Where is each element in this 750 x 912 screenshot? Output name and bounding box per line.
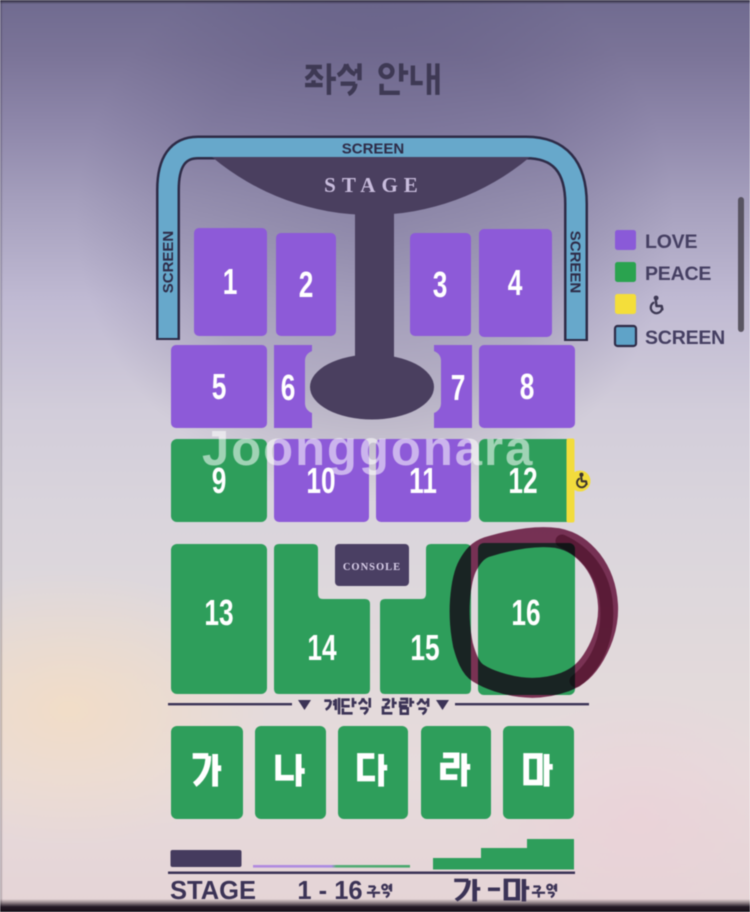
svg-text:14: 14 (307, 627, 337, 668)
svg-text:STAGE: STAGE (324, 173, 424, 197)
svg-text:LOVE: LOVE (645, 231, 697, 253)
svg-text:SCREEN: SCREEN (342, 141, 405, 158)
svg-text:SCREEN: SCREEN (567, 231, 584, 294)
svg-text:PEACE: PEACE (645, 263, 711, 285)
svg-text:SCREEN: SCREEN (160, 231, 177, 294)
svg-text:6: 6 (281, 367, 296, 408)
svg-text:1 - 16: 1 - 16 (297, 877, 362, 905)
svg-text:7: 7 (451, 367, 466, 408)
svg-text:SCREEN: SCREEN (645, 327, 725, 349)
svg-text:STAGE: STAGE (170, 877, 256, 905)
svg-text:15: 15 (410, 627, 439, 668)
svg-text:CONSOLE: CONSOLE (343, 562, 401, 573)
